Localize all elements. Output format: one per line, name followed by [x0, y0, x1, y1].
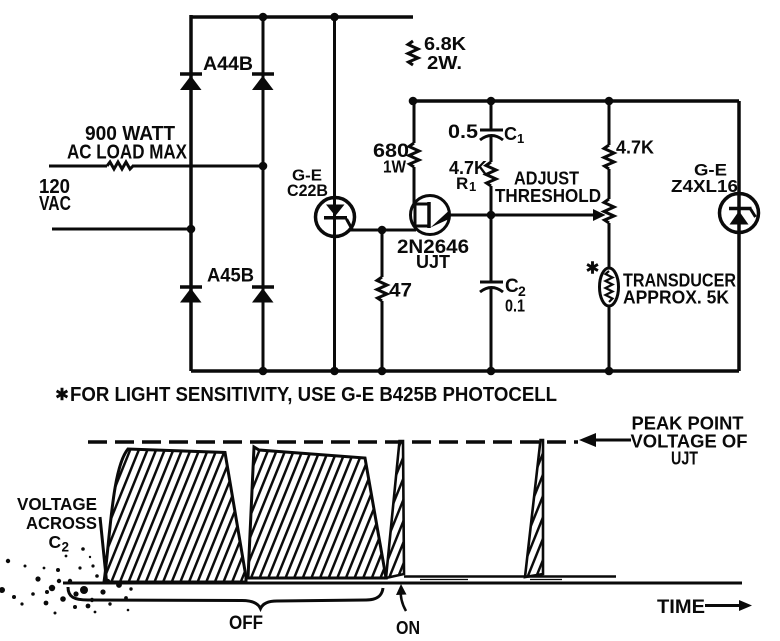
- svg-text:1W: 1W: [383, 157, 406, 177]
- svg-text:C22B: C22B: [287, 182, 328, 200]
- svg-text:0.5: 0.5: [448, 122, 478, 143]
- svg-text:APPROX. 5K: APPROX. 5K: [623, 288, 729, 308]
- svg-text:ACROSS: ACROSS: [26, 513, 97, 533]
- svg-text:VOLTAGE: VOLTAGE: [17, 494, 97, 514]
- svg-text:THRESHOLD: THRESHOLD: [495, 186, 601, 206]
- svg-text:2W.: 2W.: [427, 52, 462, 73]
- svg-text:0.1: 0.1: [505, 296, 525, 316]
- svg-text:OFF: OFF: [229, 613, 263, 634]
- svg-text:1: 1: [517, 131, 524, 146]
- svg-text:AC LOAD MAX: AC LOAD MAX: [67, 142, 188, 164]
- svg-text:C: C: [49, 532, 62, 552]
- svg-text:1: 1: [469, 179, 476, 194]
- svg-text:ON: ON: [396, 618, 420, 638]
- svg-text:4.7K: 4.7K: [616, 137, 655, 158]
- svg-text:A44B: A44B: [203, 54, 253, 75]
- svg-text:UJT: UJT: [671, 448, 699, 469]
- svg-text:UJT: UJT: [416, 252, 450, 272]
- svg-text:R: R: [456, 174, 468, 193]
- svg-text:TIME: TIME: [657, 597, 705, 618]
- svg-text:Z4XL16: Z4XL16: [671, 176, 738, 196]
- svg-text:VAC: VAC: [39, 193, 71, 215]
- svg-text:FOR LIGHT SENSITIVITY, USE G-E: FOR LIGHT SENSITIVITY, USE G-E B425B PHO…: [70, 384, 557, 406]
- svg-text:C: C: [504, 124, 517, 144]
- svg-text:A45B: A45B: [207, 266, 254, 287]
- svg-text:4.7K: 4.7K: [449, 157, 488, 178]
- svg-text:C: C: [505, 276, 519, 297]
- svg-text:6.8K: 6.8K: [424, 33, 467, 54]
- svg-text:47: 47: [389, 280, 412, 302]
- svg-text:2: 2: [62, 540, 70, 555]
